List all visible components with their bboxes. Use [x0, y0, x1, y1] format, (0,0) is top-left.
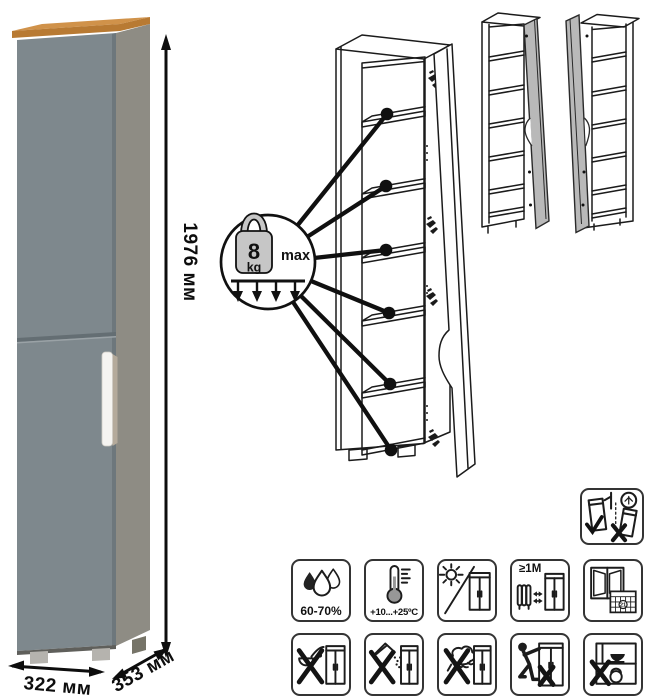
sun-slash-wardrobe-icon [439, 561, 495, 620]
secure-to-wall-icon [582, 490, 642, 543]
icon-cell-temperature: +10...+25ºC [364, 559, 424, 622]
wardrobe-glyph [401, 646, 418, 684]
icon-cell-no-sponge [437, 633, 497, 696]
cabinet-foot [30, 651, 48, 664]
door-handle [102, 352, 113, 446]
icon-cell-sunlight [437, 559, 497, 622]
cabinet-render [12, 17, 150, 664]
calendar-day: 21 [620, 603, 626, 609]
load-unit: kg [247, 261, 262, 275]
no-liquids-icon [293, 635, 349, 694]
wardrobe-glyph [545, 574, 563, 610]
wardrobe-glyph [470, 573, 490, 610]
icon-cell-no-powder [364, 633, 424, 696]
wardrobe-glyph [326, 646, 344, 684]
distance-label: ≥1M [519, 563, 541, 575]
open-window-calendar-icon: 21 [585, 561, 641, 620]
no-abrasive-sponge-icon [439, 635, 495, 694]
product-sheet-page: { "dimensions": { "height": "1976 мм", "… [0, 0, 648, 700]
open-door [434, 44, 475, 477]
cabinet-foot [92, 648, 110, 661]
icon-cell-no-drag [510, 633, 570, 696]
calendar-icon: 21 [610, 591, 635, 612]
width-dimension: 322 мм [8, 661, 105, 700]
shelves [362, 107, 425, 455]
icon-cell-no-liquids [291, 633, 351, 696]
load-qualifier: max [281, 248, 310, 264]
temperature-label: +10...+25ºC [366, 607, 422, 618]
do-not-drag-icon [512, 635, 568, 694]
depth-dimension: 353 мм [108, 645, 178, 696]
icon-cell-no-overload [583, 633, 643, 696]
weight-limit-badge: 8 kg max [221, 214, 315, 310]
icon-cell-ventilation: 21 [583, 559, 643, 622]
radiator-icon [518, 585, 531, 609]
height-dimension-label: 1976 мм [179, 222, 200, 301]
icon-cell-humidity: 60-70% [291, 559, 351, 622]
door-variant-left-drawing [482, 13, 549, 233]
icon-cell-wall-mount [580, 488, 644, 545]
door-variant-right-drawing [566, 15, 639, 233]
no-abrasive-powder-icon [366, 635, 422, 694]
depth-dimension-label: 353 мм [108, 645, 178, 696]
wardrobe-glyph [474, 646, 491, 684]
cabinet-side-panel [116, 24, 150, 646]
kettlebell-icon [610, 669, 621, 683]
assembly-drawing [336, 35, 475, 477]
humidity-label: 60-70% [293, 604, 349, 618]
icon-cell-heat-distance: ≥1M [510, 559, 570, 622]
height-dimension: 1976 мм [161, 34, 200, 658]
do-not-overload-icon [585, 635, 641, 694]
width-dimension-label: 322 мм [23, 673, 93, 700]
person-icon [518, 643, 539, 680]
cabinet-foot [132, 636, 146, 654]
